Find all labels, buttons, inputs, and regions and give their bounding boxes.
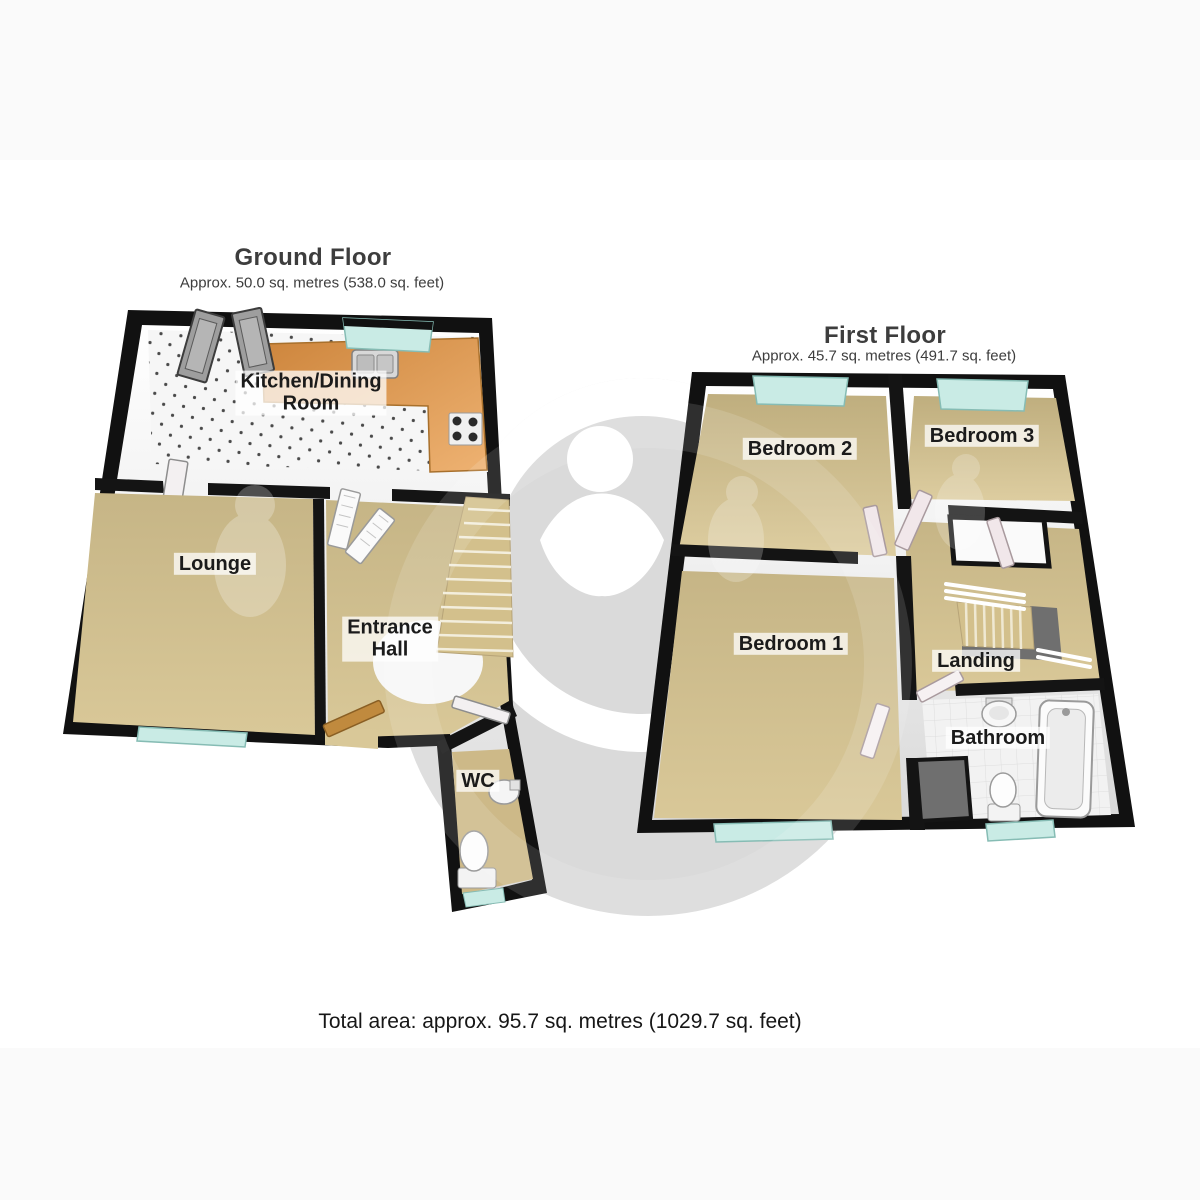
- wall-lounge-hall: [313, 499, 326, 741]
- room-label-wc: WC: [456, 770, 499, 792]
- lounge-floor: [73, 493, 315, 735]
- kitchen-hob: [449, 413, 482, 445]
- bedroom2-window: [753, 376, 848, 406]
- floorplan-image: Ground Floor Approx. 50.0 sq. metres (53…: [0, 0, 1200, 1200]
- bathroom-window: [986, 820, 1055, 841]
- room-label-entrance-hall: Entrance Hall: [342, 617, 438, 662]
- bathroom-sink: [982, 698, 1016, 727]
- room-label-kitchen: Kitchen/Dining Room: [235, 371, 386, 416]
- bedroom3-window: [937, 379, 1028, 411]
- kitchen-window: [343, 318, 433, 352]
- room-label-bedroom2: Bedroom 2: [743, 438, 857, 460]
- first-floor-subtitle: Approx. 45.7 sq. metres (491.7 sq. feet): [752, 348, 1016, 365]
- storage-cupboard: [916, 758, 971, 821]
- ground-floor-subtitle: Approx. 50.0 sq. metres (538.0 sq. feet): [180, 275, 444, 292]
- room-label-bedroom3: Bedroom 3: [925, 425, 1039, 447]
- total-area-text: Total area: approx. 95.7 sq. metres (102…: [318, 1010, 801, 1034]
- room-label-lounge: Lounge: [174, 553, 256, 575]
- room-label-landing: Landing: [932, 650, 1020, 672]
- bathtub: [1036, 700, 1094, 818]
- first-floor-title: First Floor: [824, 322, 946, 350]
- ground-floor-title: Ground Floor: [235, 244, 392, 272]
- room-label-bedroom1: Bedroom 1: [734, 633, 848, 655]
- room-label-bathroom: Bathroom: [946, 727, 1050, 749]
- bedroom3-floor: [906, 396, 1075, 501]
